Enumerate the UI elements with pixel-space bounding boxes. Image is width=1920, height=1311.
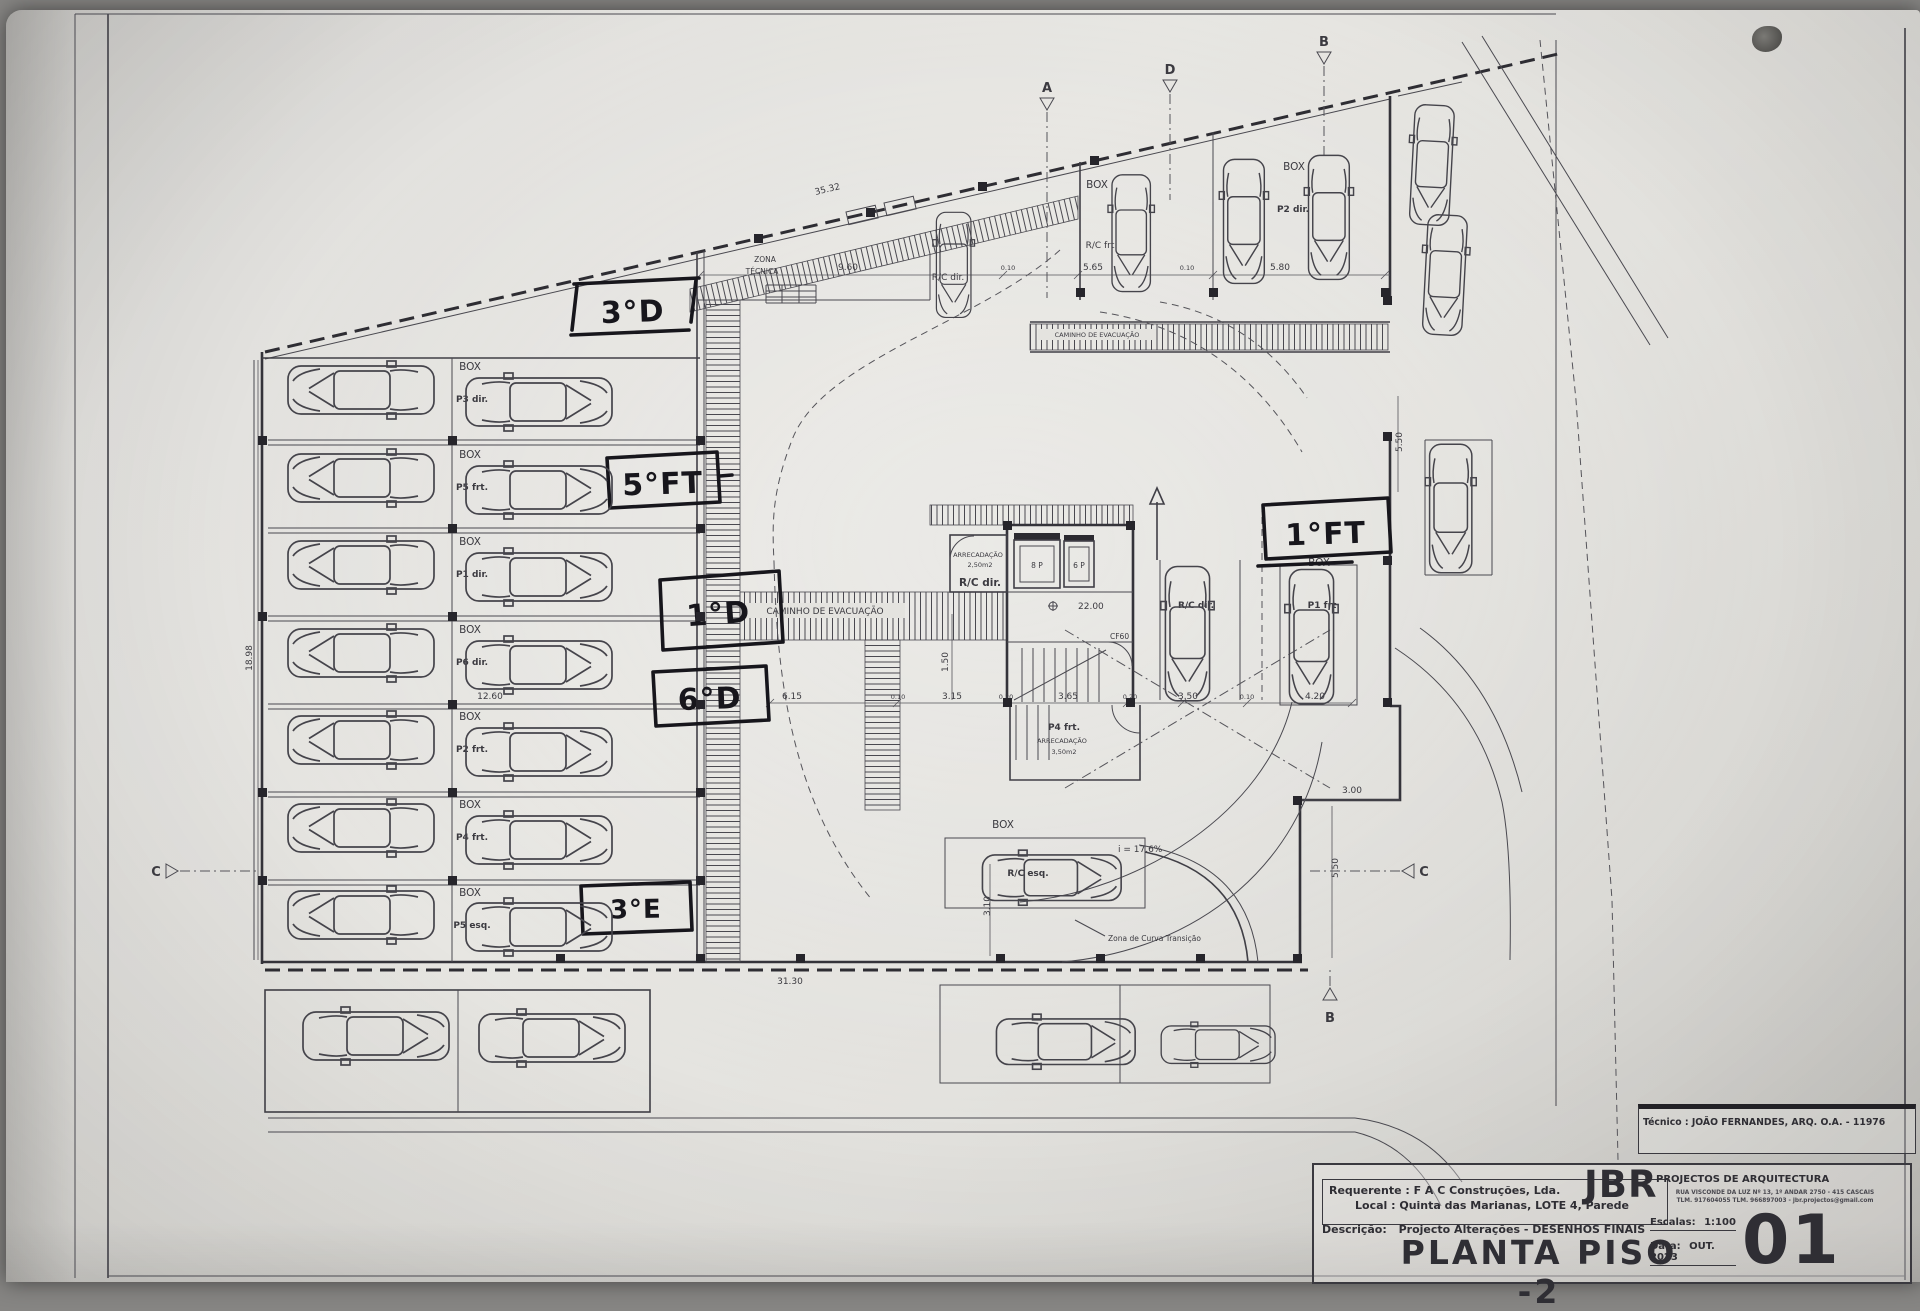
column-marker [866,208,875,217]
title-block: Requerente : F A C Construções, Lda. Loc… [1312,1163,1912,1284]
column-marker [696,524,705,533]
column-marker [1196,954,1205,963]
left-parking-block [262,251,704,962]
column-marker [1209,288,1218,297]
data-label: Data: [1650,1241,1681,1252]
photographed-floorplan-sheet: { "sheet": { "technician_label": "Técnic… [0,0,1920,1282]
column-marker [696,436,705,445]
column-marker [448,612,457,621]
dim-9-60: 9.60 [838,263,858,273]
car-icon [1405,104,1459,226]
stall4-unit: P6 dir. [456,658,488,668]
firm-address-line1: RUA VISCONDE DA LUZ Nº 13, 1º ANDAR 2750… [1644,1189,1906,1197]
evac-path-label-mid: CAMINHO DE EVACUAÇÃO [766,606,883,617]
column-marker [1076,288,1085,297]
dim-31-30: 31.30 [777,977,803,987]
technician-box: Técnico : JOÃO FERNANDES, ARQ. O.A. - 11… [1638,1104,1916,1154]
column-marker [696,700,705,709]
escala-label: Escalas: [1650,1217,1696,1228]
core-storage-area: 2,50m2 [968,561,993,569]
column-marker [696,788,705,797]
car-icon [303,1007,449,1065]
scale-cell: Escalas: 1:100 [1650,1217,1736,1231]
top-stall1-box: BOX [1086,179,1108,191]
technician-label: Técnico : JOÃO FERNANDES, ARQ. O.A. - 11… [1643,1117,1885,1128]
core-storage-name: ARRECADAÇÃO [953,550,1003,559]
evac-path-label-top: CAMINHO DE EVACUAÇÃO [1055,330,1140,339]
car-icon [288,711,434,769]
dim-0-10-d: 0.10 [1240,693,1254,701]
stall4-box: BOX [459,624,481,636]
car-icon [996,1014,1135,1069]
column-marker [1383,296,1392,305]
car-icon [479,1009,625,1067]
car-icon [288,624,434,682]
handwritten-3e-text: 3°E [610,895,662,926]
date-cell: Data: OUT. 2023 [1650,1241,1736,1266]
stall3-box: BOX [459,536,481,548]
sheet-number: 01 [1742,1201,1841,1280]
column-marker [1126,698,1135,707]
dim-5-80: 5.80 [1270,263,1290,273]
column-marker [696,612,705,621]
column-marker [1003,698,1012,707]
zona-tecnica-line2: TÉCNICA [745,267,780,276]
dim-0-10-c: 0.10 [891,693,905,701]
column-marker [1096,954,1105,963]
section-marker-b-bottom: B [1325,1011,1335,1026]
bottom-outside-parking [265,985,1462,1206]
ramp-hatching [690,196,1388,962]
dim-3-00: 3.00 [1342,786,1362,796]
column-marker [1293,796,1302,805]
stall3-unit: P1 dir. [456,570,488,580]
bottom-stall-box: BOX [992,819,1014,831]
column-marker [448,700,457,709]
column-marker [796,954,805,963]
car-icon [982,850,1121,905]
curve-note-text: Zona de Curva Transição [1108,934,1201,943]
handwritten-3d-text: 3°D [600,294,665,331]
dim-12-60: 12.60 [477,692,503,702]
stall1-box: BOX [459,361,481,373]
dim-3-15: 3.15 [942,692,962,702]
column-marker [448,788,457,797]
column-marker [448,876,457,885]
bottom-stall-area [945,630,1330,962]
column-marker [1293,954,1302,963]
column-marker [1383,432,1392,441]
car-icon [1285,570,1338,704]
column-marker [258,436,267,445]
floor-plan-drawing: CAMINHO DE EVACUAÇÃO CAMINHO DE EVACUAÇÃ… [0,0,1920,1282]
ramp-slope-label: i = 17.6% [1118,845,1163,855]
car-icon [1219,159,1268,283]
escala-value: 1:100 [1704,1217,1736,1228]
handwritten-3e: 3°E [581,882,692,934]
right-outside-area [1395,36,1668,1160]
section-marker-d: D [1165,63,1176,78]
core-storage-unit: R/C dir. [959,577,1001,589]
elevator1-label: 8 P [1031,561,1043,570]
top-stall2-box: BOX [1283,161,1305,173]
column-marker [448,524,457,533]
zona-tecnica-line1: ZONA [754,255,777,264]
handwritten-1ft: 1°FT [1258,498,1391,566]
car-icon [1418,214,1472,336]
stall7-box: BOX [459,887,481,899]
column-marker [696,954,705,963]
elevator2-label: 6 P [1073,561,1085,570]
column-marker [1003,521,1012,530]
car-icon [288,536,434,594]
handwritten-1d-text: 1°D [685,595,751,634]
top-stall1-unit: R/C frt [1086,241,1115,251]
car-icon [288,886,434,944]
stall6-unit: P4 frt. [456,833,488,843]
column-marker [258,612,267,621]
column-marker [1126,521,1135,530]
column-marker [978,182,987,191]
dim-6-15: 6.15 [782,692,802,702]
top-stall2-unit: P2 dir. [1277,205,1309,215]
car-icon [1108,175,1154,292]
section-marker-b-top: B [1319,35,1329,50]
curve-transition-note: Zona de Curva Transição [1075,920,1201,943]
dim-0-10-a: 0.10 [1001,264,1015,272]
section-marker-a: A [1042,81,1052,96]
car-icon [288,449,434,507]
car-icon [288,361,434,419]
handwritten-3d: 3°D [571,278,699,335]
dim-5-50-low: 5.50 [1331,858,1341,878]
car-icon [1161,1022,1275,1067]
building-boundary [254,54,1558,970]
column-marker [1381,288,1390,297]
stair-storage-name: ARRECADAÇÃO [1037,736,1087,745]
stall6-box: BOX [459,799,481,811]
section-marker-c-right: C [1419,865,1429,880]
bottom-stall-unit: R/C esq. [1007,869,1048,879]
dim-0-10-b: 0.10 [1180,264,1194,272]
handwritten-1ft-text: 1°FT [1285,516,1367,554]
column-marker [1383,698,1392,707]
section-marker-c-left: C [151,865,161,880]
stall2-box: BOX [459,449,481,461]
stall5-unit: P2 frt. [456,745,488,755]
sheet-frame [75,14,1905,1280]
section-markers: A D B C C B [151,35,1429,1026]
dim-5-50-top: 5.50 [1395,432,1405,452]
car-icon [1425,444,1476,572]
column-marker [556,954,565,963]
dim-18-98: 18.98 [245,645,255,671]
door-code: CF60 [1110,632,1129,641]
column-marker [1090,156,1099,165]
column-marker [448,436,457,445]
handwritten-5ft-text: 5°FT [622,466,704,504]
firm-name: PROJECTOS DE ARQUITECTURA [1656,1174,1829,1185]
stall2-unit: P5 frt. [456,483,488,493]
stall7-unit: P5 esq. [453,921,490,931]
level-mark: 22.00 [1078,602,1104,612]
dim-top-slant: 35.32 [814,182,841,198]
stall1-unit: P3 dir. [456,395,488,405]
car-icon [288,799,434,857]
column-marker [258,876,267,885]
stair-storage-unit: P4 frt. [1048,723,1080,733]
dim-3-65: 3.65 [1058,692,1078,702]
handwritten-6d-text: 6°D [677,681,742,718]
stair-storage-area: 3,50m2 [1052,748,1077,756]
car-icon [1304,155,1353,279]
stall5-box: BOX [459,711,481,723]
column-marker [258,788,267,797]
car-icon [1161,567,1214,701]
column-marker [754,234,763,243]
dim-1-50: 1.50 [941,652,951,672]
column-marker [996,954,1005,963]
column-marker [696,876,705,885]
dim-5-65: 5.65 [1083,263,1103,273]
column-marker [1383,556,1392,565]
